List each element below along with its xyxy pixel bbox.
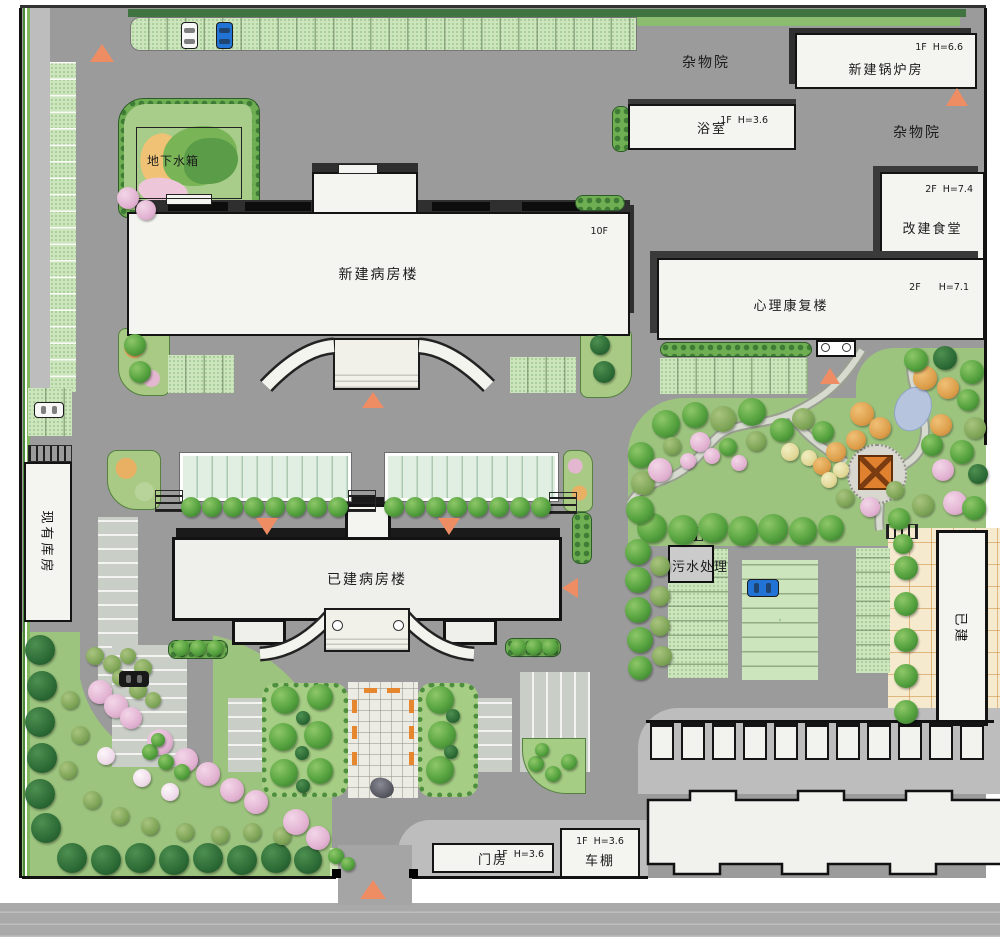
tree-icon (141, 817, 159, 835)
tree-icon (921, 434, 943, 456)
west-parking-strip (50, 62, 76, 392)
tree-icon (893, 534, 913, 554)
tree-icon (190, 640, 206, 656)
carport-stall (929, 722, 953, 760)
tree-icon (792, 408, 814, 430)
tree-icon (31, 813, 61, 843)
plaza-bench (409, 726, 414, 739)
tree-icon (304, 721, 332, 749)
north-parking-strip (130, 17, 637, 51)
tree-icon (91, 845, 121, 875)
new-ward-entrance-canopy (333, 338, 420, 390)
tree-icon (261, 843, 291, 873)
bathhouse-spec: 1F H=3.6 (720, 115, 768, 126)
gate-post (409, 869, 418, 878)
boiler-building: 新建锅炉房 1F H=6.6 (795, 33, 977, 89)
north-hedge (128, 9, 966, 17)
tree-icon (648, 458, 672, 482)
canteen-spec: 2F H=7.4 (925, 184, 973, 195)
tree-icon (728, 516, 758, 546)
tree-icon (57, 843, 87, 873)
existing-ward-label: 已建病房楼 (327, 569, 407, 589)
tree-icon (405, 497, 425, 517)
new-ward-roof-vent (522, 202, 580, 211)
tree-icon (652, 646, 672, 666)
tree-icon (650, 586, 670, 606)
tree-icon (151, 733, 165, 747)
warehouse-ramp (28, 445, 72, 462)
tree-icon (181, 497, 201, 517)
tree-icon (27, 743, 57, 773)
tree-icon (295, 746, 309, 760)
misc-yard-east-label: 杂物院 (893, 122, 941, 142)
tree-icon (265, 497, 285, 517)
rehab-parking-grid (660, 358, 808, 394)
hedge-capsule-h (575, 195, 625, 211)
planting-corner-w (107, 450, 161, 510)
tree-icon (528, 756, 544, 772)
tree-icon (202, 497, 222, 517)
tree-icon (846, 430, 866, 450)
built-label: 已建 (952, 612, 971, 644)
tree-icon (894, 592, 918, 616)
tree-icon (950, 440, 974, 464)
tree-icon (136, 200, 156, 220)
tree-icon (489, 497, 509, 517)
tree-icon (71, 726, 89, 744)
tree-icon (111, 807, 129, 825)
tree-icon (680, 453, 696, 469)
bathhouse-building: 浴室 1F H=3.6 (628, 104, 796, 150)
tree-icon (145, 692, 161, 708)
water-tank-label: 地下水箱 (147, 152, 199, 169)
north-boundary-line (20, 5, 986, 8)
tree-icon (561, 754, 577, 770)
entrance-column (393, 620, 404, 631)
tree-icon (937, 377, 959, 399)
carport-stall (681, 722, 705, 760)
tree-icon (193, 843, 223, 873)
tree-icon (821, 472, 837, 488)
carport-stall (712, 722, 736, 760)
tree-icon (627, 627, 653, 653)
carport-stall (774, 722, 798, 760)
existing-ward-wing-se (443, 619, 497, 645)
hospital-site-plan: 地下水箱 新建病房楼 10F 浴室 1F H=3.6 新建锅炉房 1F H=6.… (0, 0, 1000, 950)
tree-icon (894, 628, 918, 652)
tree-icon (97, 747, 115, 765)
tree-icon (444, 745, 458, 759)
tree-icon (341, 857, 355, 871)
tree-icon (545, 766, 561, 782)
tree-icon (283, 809, 309, 835)
white-car-icon (34, 402, 64, 418)
plaza-bench (352, 726, 357, 739)
tree-icon (223, 497, 243, 517)
tree-icon (894, 556, 918, 580)
tree-icon (738, 398, 766, 426)
tree-icon (590, 335, 610, 355)
tree-icon (269, 723, 297, 751)
tree-icon (207, 640, 223, 656)
tree-icon (710, 406, 736, 432)
tree-icon (296, 711, 310, 725)
parking-canopy-east (385, 453, 558, 501)
tree-icon (426, 756, 454, 784)
boiler-label: 新建锅炉房 (848, 59, 923, 78)
tree-icon (27, 671, 57, 701)
tree-icon (912, 494, 934, 516)
rehab-spec: 2F H=7.1 (909, 282, 969, 293)
black-car-icon (119, 671, 149, 687)
stairs-icon (549, 492, 577, 514)
tree-icon (860, 497, 880, 517)
tree-icon (243, 823, 261, 841)
tree-icon (220, 778, 244, 802)
tree-icon (59, 761, 77, 779)
bench-icon (816, 340, 856, 357)
tree-icon (731, 455, 747, 471)
tree-icon (270, 759, 298, 787)
tree-icon (83, 791, 101, 809)
tree-icon (719, 438, 737, 456)
tree-icon (307, 684, 333, 710)
tree-icon (446, 709, 460, 723)
tree-icon (159, 845, 189, 875)
tree-icon (384, 497, 404, 517)
tree-icon (531, 497, 551, 517)
tree-icon (894, 700, 918, 724)
tree-icon (930, 414, 952, 436)
tree-icon (886, 481, 904, 499)
tree-icon (682, 402, 708, 428)
tree-icon (770, 418, 794, 442)
public-road (0, 903, 1000, 937)
tree-icon (836, 489, 854, 507)
new-ward-label: 新建病房楼 (339, 264, 419, 284)
plaza-bench (409, 752, 414, 765)
tree-icon (818, 515, 844, 541)
tree-icon (932, 459, 954, 481)
tree-icon (25, 707, 55, 737)
new-ward-floors: 10F (590, 226, 608, 237)
carport-stall (650, 722, 674, 760)
tree-icon (888, 508, 910, 530)
parking-pad-west (168, 355, 234, 393)
tree-icon (625, 567, 651, 593)
entrance-column (332, 620, 343, 631)
tree-icon (542, 639, 558, 655)
plaza-bench (364, 688, 377, 693)
tree-icon (698, 513, 728, 543)
stairs-icon (155, 490, 183, 512)
gate-post (332, 869, 341, 878)
existing-ward-wing-sw (232, 619, 286, 645)
plaza-stalls-east (478, 698, 512, 772)
tree-icon (869, 417, 891, 439)
tree-icon (328, 497, 348, 517)
white-car-icon (181, 22, 198, 49)
stairs-icon (348, 490, 376, 512)
tree-icon (960, 360, 984, 384)
tree-icon (704, 448, 720, 464)
tree-icon (86, 647, 104, 665)
warehouse-building: 现有库房 (24, 462, 72, 622)
tree-icon (964, 417, 986, 439)
tree-icon (286, 497, 306, 517)
tree-icon (244, 790, 268, 814)
tree-icon (120, 648, 136, 664)
tree-icon (161, 783, 179, 801)
garden-south-edge (22, 876, 336, 879)
gatehouse-spec: 1F H=3.6 (496, 849, 544, 860)
tree-icon (174, 764, 190, 780)
tree-icon (306, 826, 330, 850)
carport-stall (898, 722, 922, 760)
tree-icon (307, 758, 333, 784)
tree-icon (294, 846, 322, 874)
carport-spec: 1F H=3.6 (576, 836, 624, 847)
tree-icon (668, 515, 698, 545)
tree-icon (176, 823, 194, 841)
rehab-building: 心理康复楼 2F H=7.1 (657, 258, 985, 340)
carport-stall (805, 722, 829, 760)
tree-icon (510, 497, 530, 517)
carport-building: 1F H=3.6 车棚 (560, 828, 640, 878)
plaza-stalls-west (228, 698, 262, 772)
blue-car-icon (216, 22, 233, 49)
blue-car-icon (747, 579, 779, 597)
tree-icon (296, 779, 310, 793)
tree-icon (904, 348, 928, 372)
tree-icon (120, 707, 142, 729)
canteen-label: 改建食堂 (902, 218, 962, 237)
tree-icon (25, 635, 55, 665)
tree-icon (307, 497, 327, 517)
rehab-hedge-row (660, 342, 812, 357)
tree-icon (650, 556, 670, 576)
tree-icon (526, 639, 542, 655)
boiler-spec: 1F H=6.6 (915, 42, 963, 53)
tree-icon (426, 497, 446, 517)
tree-icon (173, 640, 189, 656)
carport-stall (743, 722, 767, 760)
tree-icon (758, 514, 788, 544)
tree-icon (133, 769, 151, 787)
built-building: 已建 (936, 530, 988, 726)
canteen-building: 2F H=7.4 改建食堂 (880, 172, 985, 260)
tree-icon (781, 443, 799, 461)
tree-icon (227, 845, 257, 875)
tree-icon (61, 691, 79, 709)
tree-icon (663, 437, 681, 455)
tree-icon (962, 496, 986, 520)
tree-icon (468, 497, 488, 517)
tree-icon (826, 442, 846, 462)
parking-grid-c (856, 548, 890, 673)
west-boundary-line (19, 8, 22, 878)
new-ward-roof-vent (245, 202, 311, 211)
tree-icon (650, 616, 670, 636)
carport-label: 车棚 (585, 850, 615, 869)
new-ward-tower (312, 172, 418, 216)
plaza-bench (409, 700, 414, 713)
tree-icon (447, 497, 467, 517)
tree-icon (124, 334, 146, 356)
carport-stall (836, 722, 860, 760)
misc-yard-north-label: 杂物院 (682, 52, 730, 72)
new-ward-building: 新建病房楼 10F (127, 212, 630, 336)
gatehouse-building: 门房 1F H=3.6 (432, 843, 554, 873)
tree-icon (789, 517, 817, 545)
tree-icon (271, 686, 299, 714)
tree-icon (129, 361, 151, 383)
parking-pad-east (510, 357, 576, 393)
tree-icon (510, 639, 526, 655)
north-planting-strip (630, 17, 960, 26)
tree-icon (894, 664, 918, 688)
plaza-bench (352, 752, 357, 765)
carport-stall (960, 722, 984, 760)
west-green-belt (23, 8, 30, 876)
hedge-capsule-e (572, 512, 592, 564)
tree-icon (933, 346, 957, 370)
tree-icon (196, 762, 220, 786)
tree-icon (626, 496, 654, 524)
tree-icon (535, 743, 549, 757)
plaza-bench (387, 688, 400, 693)
tree-icon (652, 410, 680, 438)
tree-icon (746, 431, 766, 451)
tree-icon (593, 361, 615, 383)
tree-icon (968, 464, 988, 484)
tree-icon (158, 754, 174, 770)
sewage-label: 污水处理 (672, 556, 728, 575)
parking-grid-b (742, 560, 818, 680)
new-ward-tower-step (338, 164, 378, 174)
rehab-label: 心理康复楼 (753, 295, 828, 314)
site-margin (0, 878, 1000, 903)
tree-icon (628, 656, 652, 680)
plaza-bench (352, 700, 357, 713)
tree-icon (125, 843, 155, 873)
tree-icon (244, 497, 264, 517)
tree-icon (625, 597, 651, 623)
parking-canopy-west (180, 453, 351, 501)
tree-icon (812, 421, 834, 443)
tree-icon (25, 779, 55, 809)
tree-icon (957, 389, 979, 411)
new-ward-roof-vent (432, 202, 490, 211)
tree-icon (625, 539, 651, 565)
carport-stall (867, 722, 891, 760)
warehouse-label: 现有库房 (39, 510, 58, 574)
tree-icon (211, 826, 229, 844)
